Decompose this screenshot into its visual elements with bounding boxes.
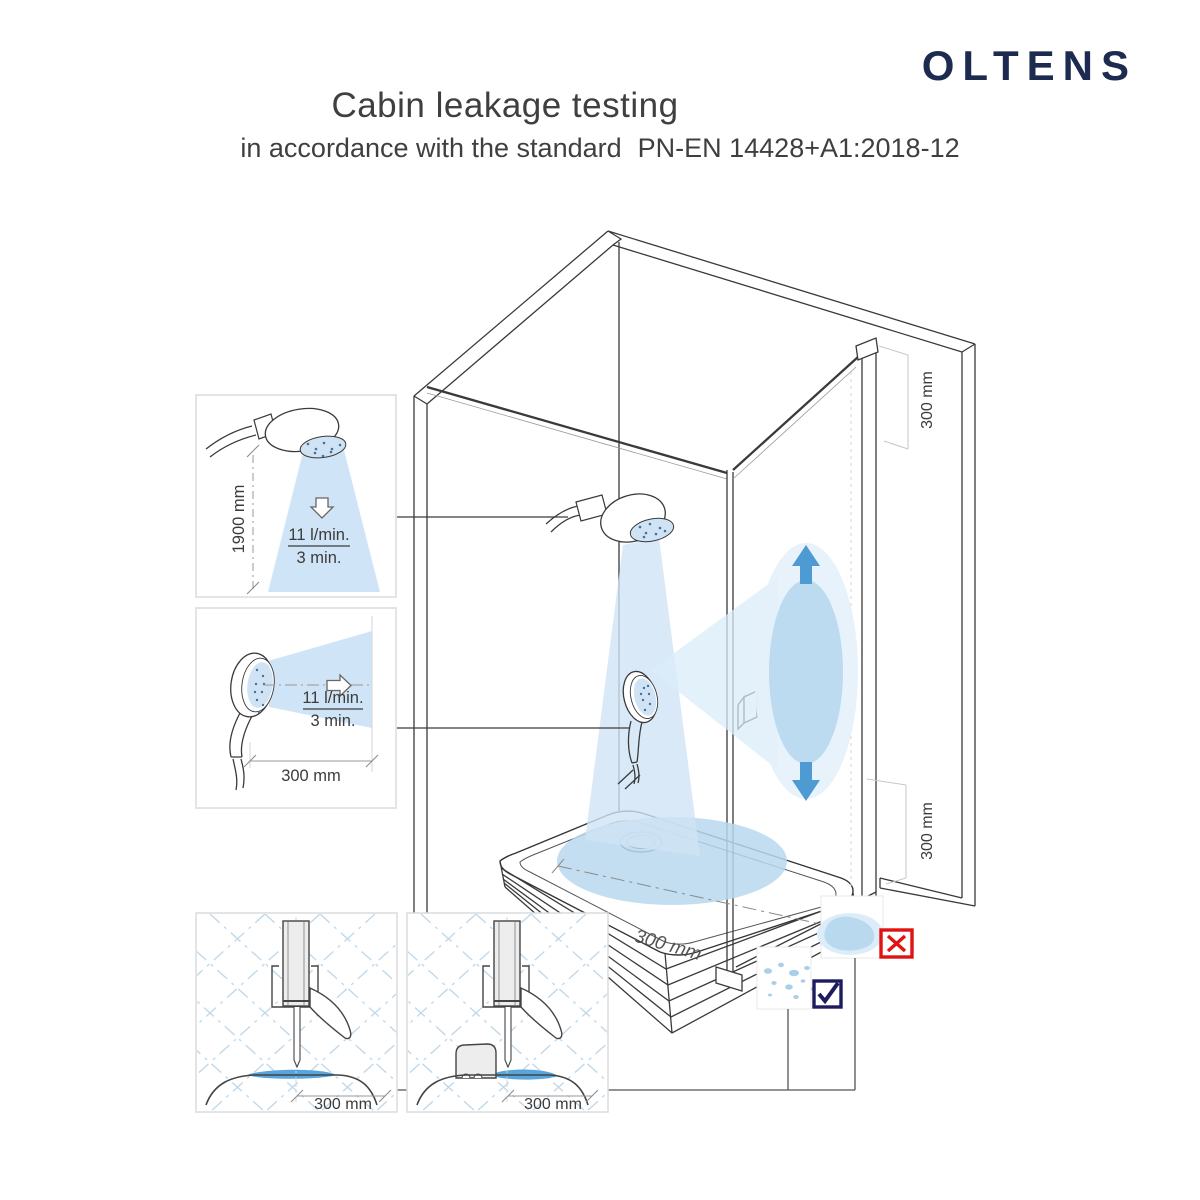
fail-x-icon: [881, 930, 912, 957]
pass-check-icon: [814, 981, 841, 1007]
top-gap-label: 300 mm: [919, 371, 936, 429]
infographic-page: OLTENS Cabin leakage testing in accordan…: [0, 0, 1200, 1200]
spray-areas: [557, 538, 858, 905]
bottom-gap-dimension: 300 mm: [867, 779, 936, 884]
inset2-distance-label: 300 mm: [281, 767, 341, 785]
top-shower-head: [397, 486, 676, 549]
inset1-flow-label: 11 l/min.: [288, 526, 349, 544]
inset4-block: [456, 1044, 496, 1078]
inset-side-spray: 11 l/min. 3 min. 300 mm: [196, 608, 396, 808]
inset2-flow-label: 11 l/min.: [302, 689, 363, 707]
droplet-detail-box: [757, 947, 811, 1009]
inset2-duration-label: 3 min.: [311, 712, 356, 730]
inset4-distance-label: 300 mm: [524, 1096, 582, 1113]
door-spray-ellipse: [769, 580, 843, 764]
diagram-canvas: 300 mm 300 mm 300 mm: [0, 0, 1200, 1200]
inset-top-spray: 1900 mm 11 l/min. 3 min.: [196, 395, 396, 597]
inset1-duration-label: 3 min.: [297, 549, 342, 567]
bottom-gap-label: 300 mm: [919, 802, 936, 860]
inset1-height-label: 1900 mm: [230, 485, 248, 554]
inset3-distance-label: 300 mm: [314, 1096, 372, 1113]
top-gap-dimension: 300 mm: [879, 346, 936, 449]
